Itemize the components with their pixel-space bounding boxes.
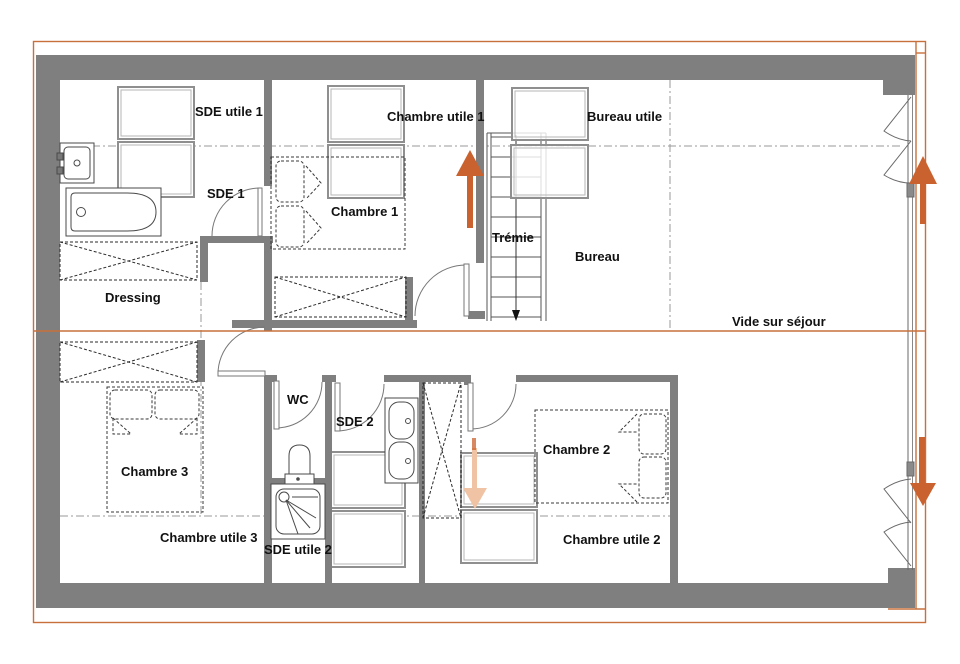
room-label-chambre-utile-2: Chambre utile 2 (563, 533, 661, 546)
window-casement (884, 479, 911, 523)
wardrobe-closet-tall (423, 383, 461, 518)
window-mullion (907, 183, 914, 197)
wall-stub-dressing-top (200, 236, 208, 282)
bathtub-sde1 (66, 188, 161, 236)
wall-sde2-closet (419, 375, 425, 583)
door-arc-chambre1 (415, 265, 466, 316)
stair-flight-down-arrow-icon (512, 310, 520, 321)
plan-drawing (0, 0, 960, 664)
window-casement (884, 141, 911, 183)
room-label-chambre-1: Chambre 1 (331, 205, 398, 218)
skylight (328, 145, 404, 198)
wall-hinge-block (468, 311, 485, 319)
room-label-chambre-2: Chambre 2 (543, 443, 610, 456)
door-leaf-chambre2 (468, 383, 473, 431)
shower-sde-utile-2 (271, 484, 325, 539)
window-mullion (907, 462, 914, 476)
skylight (461, 510, 537, 563)
toilet-wc (285, 445, 314, 484)
skylight (331, 511, 405, 567)
door-arc-chambre2 (471, 384, 516, 429)
door-arc-hall (218, 327, 265, 374)
double-sink-sde2 (385, 398, 418, 483)
sink-sde1 (57, 143, 94, 183)
wall-bath-bottom (207, 236, 273, 243)
wall-block-bottom-right (888, 568, 915, 608)
room-label-sde-2: SDE 2 (336, 415, 374, 428)
room-label-vide-sur-sejour: Vide sur séjour (732, 315, 826, 328)
skylight (118, 87, 194, 139)
wardrobe-corridor (275, 277, 406, 317)
room-label-chambre-utile-3: Chambre utile 3 (160, 531, 258, 544)
room-label-bureau: Bureau (575, 250, 620, 263)
wall-bath-lower (264, 236, 272, 331)
room-label-sde-utile-2: SDE utile 2 (264, 543, 332, 556)
room-label-sde-utile-1: SDE utile 1 (195, 105, 263, 118)
room-label-sde-1: SDE 1 (207, 187, 245, 200)
room-label-chambre-utile-1: Chambre utile 1 (387, 110, 485, 123)
wall-bottom-top-c (384, 375, 471, 382)
room-label-chambre-3: Chambre 3 (121, 465, 188, 478)
floor-plan: SDE utile 1 Chambre utile 1 Bureau utile… (0, 0, 960, 664)
wall-chambre2-right (670, 375, 678, 583)
wall-bath-upper (264, 80, 272, 186)
door-leaf-wc (274, 381, 279, 429)
wall-block-top-right (883, 55, 915, 95)
window-casement (884, 522, 911, 566)
wall-exterior-top (36, 55, 915, 80)
wall-stub-dressing-low (197, 340, 205, 382)
window-casement (884, 97, 911, 141)
room-label-wc: WC (287, 393, 309, 406)
wardrobe-dressing-upper (60, 242, 197, 280)
skylight (511, 145, 588, 198)
room-label-tremie: Trémie (492, 231, 534, 244)
bed-chambre-3 (107, 387, 203, 512)
skylight (512, 88, 588, 140)
room-label-bureau-utile: Bureau utile (587, 110, 662, 123)
wall-exterior-bottom (36, 583, 890, 608)
facade-windows (884, 95, 914, 570)
room-label-dressing: Dressing (105, 291, 161, 304)
door-leaf-hall (218, 371, 265, 376)
wardrobe-dressing-lower (60, 342, 197, 382)
door-leaf-sde1 (258, 188, 262, 236)
wall-bottom-top-d (516, 375, 673, 382)
door-leaf-chambre1 (464, 264, 469, 316)
